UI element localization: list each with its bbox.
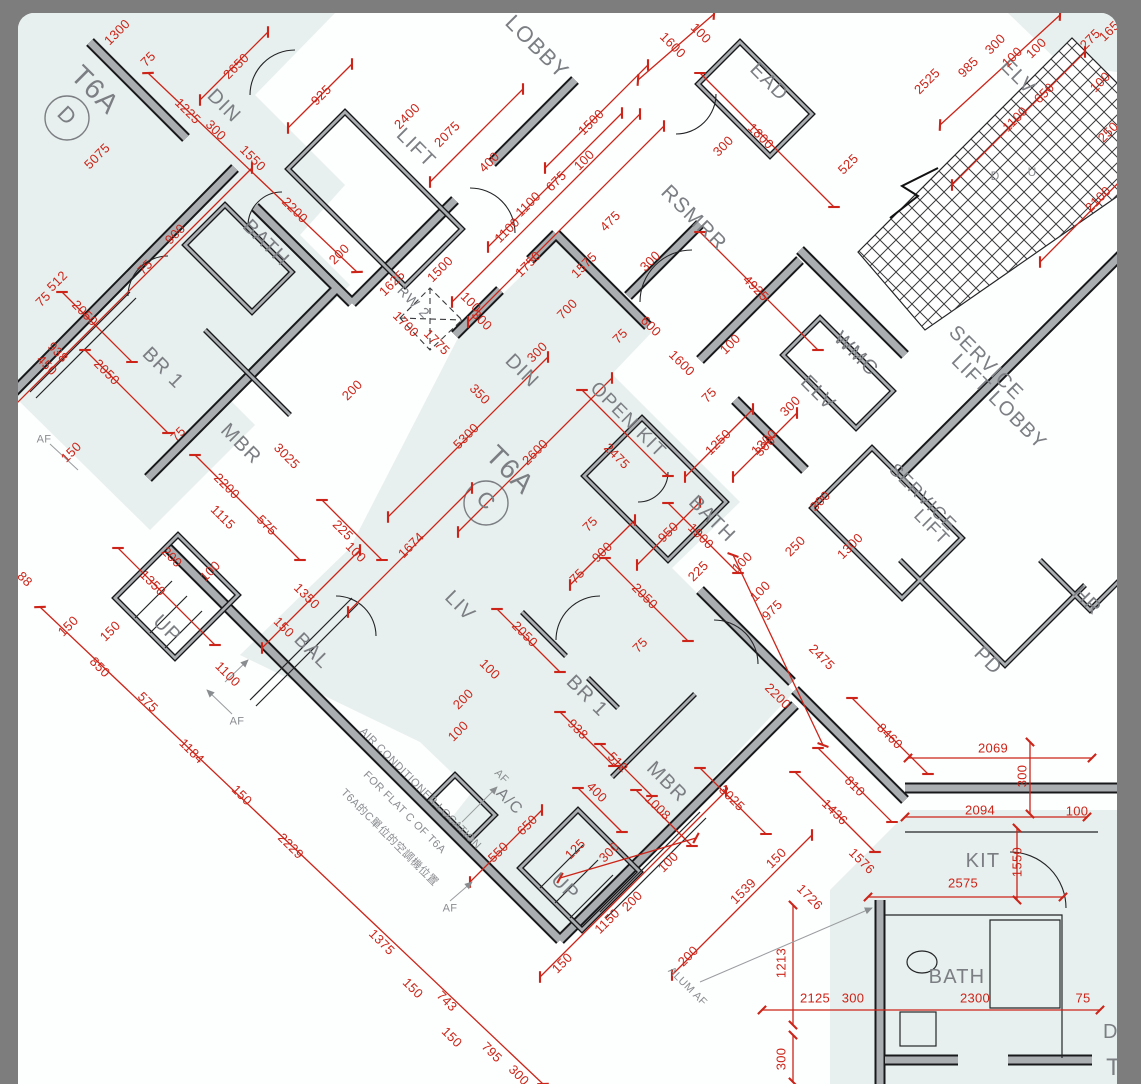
dim-label: 250 <box>1095 119 1117 144</box>
dim-label: 150 <box>97 618 122 643</box>
dim-label: 900 <box>589 539 614 564</box>
dim-label: 75 <box>138 49 158 69</box>
dim-label: 1350 <box>292 581 322 611</box>
dim-label: 675 <box>543 168 568 193</box>
dim-label: 200 <box>619 888 644 913</box>
dim-label: 2050 <box>510 619 540 649</box>
dim-label: 575 <box>135 689 160 714</box>
dim-label: 700 <box>554 296 579 321</box>
room-label: HR <box>1069 583 1105 619</box>
dim-label: 3025 <box>272 441 302 471</box>
room-label: DIN <box>1103 1022 1117 1042</box>
dim-label: 200 <box>675 943 700 968</box>
dim-label: 512 <box>605 749 630 774</box>
dim-label: 100 <box>445 718 470 743</box>
dim-label: 1300 <box>835 531 865 561</box>
dim-label: 512 <box>44 268 69 293</box>
dim-label: 1500 <box>576 107 606 137</box>
dim-label: 650 <box>514 812 539 837</box>
dim-label: 150 <box>400 975 425 1000</box>
room-label: UP <box>547 869 582 904</box>
dim-label: 3025 <box>717 783 747 813</box>
dim-label: 5075 <box>82 141 112 171</box>
dim-label: 1100 <box>213 659 243 689</box>
dim-label: 1184 <box>177 736 207 766</box>
dim-label: 810 <box>842 773 867 798</box>
room-label: A/C <box>493 786 526 819</box>
dim-label: 4925 <box>741 273 771 303</box>
dim-label: 1575 <box>569 250 599 280</box>
dim-label: 75 <box>610 326 630 346</box>
dim-label: 100 <box>729 549 754 574</box>
dim-label: 150 <box>439 1024 464 1049</box>
floor-plan-sheet: T6ADDINBATHBR 1MBRLOBBYLIFTRW 2RSMRREADE… <box>18 13 1117 1084</box>
room-label: C <box>472 487 500 515</box>
dim-label: 150 <box>229 782 254 807</box>
dim-label: 1750 <box>513 249 543 279</box>
dim-label: 2075 <box>432 119 462 149</box>
dim-label: 300 <box>777 393 802 418</box>
dim-label: 225 <box>685 558 710 583</box>
dim-label: 100 <box>747 578 772 603</box>
dim-label: 100 <box>197 558 222 583</box>
dim-label: 200 <box>159 544 184 569</box>
room-label: LIFT <box>393 125 440 172</box>
letter-label: D <box>991 170 1000 182</box>
dim-label: 2200 <box>212 471 242 501</box>
note-label: AF <box>37 435 52 446</box>
dim-label: 1775 <box>422 327 452 357</box>
dim-label: 2050 <box>630 581 660 611</box>
dim-label: 1375 <box>367 927 397 957</box>
dim-label: 2600 <box>520 437 550 467</box>
room-label: BR 1 <box>563 672 612 721</box>
dim-label: 1674 <box>396 530 426 560</box>
dim-label: 1600 <box>658 30 688 60</box>
dim-label: 300 <box>1016 765 1029 788</box>
dim-label: 100 <box>717 331 742 356</box>
room-label: BR 1 <box>139 344 188 393</box>
dim-label: 100 <box>1087 69 1112 94</box>
dim-label: 1550 <box>238 143 268 173</box>
dim-label: 850 <box>87 654 112 679</box>
dim-label: 1100 <box>1000 104 1030 134</box>
dim-label: 1100 <box>492 215 522 245</box>
dim-label: 1550 <box>1011 847 1024 877</box>
dim-label: 75 <box>567 566 587 586</box>
dim-label: 150 <box>55 613 80 638</box>
room-label: ELV <box>797 372 839 414</box>
note-label: AF <box>230 717 245 728</box>
dim-label: 150 <box>549 950 574 975</box>
dim-label: 300 <box>807 488 832 513</box>
dim-label: 100 <box>655 849 680 874</box>
dim-label: 300 <box>637 248 662 273</box>
dim-label: 75 <box>580 514 600 534</box>
room-label: LIV <box>441 587 479 625</box>
room-label: D <box>53 102 81 130</box>
dim-label: 985 <box>955 54 980 79</box>
dim-label: 938 <box>565 716 590 741</box>
room-label: EAD <box>746 59 792 105</box>
dim-label: 1150 <box>592 906 622 936</box>
dim-label: 2069 <box>978 742 1008 755</box>
dim-label: 75 <box>699 385 719 405</box>
dim-label: 2525 <box>912 66 942 96</box>
dim-label: 300 <box>775 1048 788 1071</box>
dim-label: 75 <box>630 635 650 655</box>
dim-label: 2200 <box>763 681 793 711</box>
dim-label: 475 <box>597 208 622 233</box>
dim-label: 975 <box>759 597 784 622</box>
dim-label: 925 <box>308 82 333 107</box>
dim-label: 200 <box>339 377 364 402</box>
dim-label: 350 <box>467 381 492 406</box>
dim-label: 1350 <box>138 568 168 598</box>
room-label: RSMRR <box>657 181 731 255</box>
dim-label: 100 <box>1066 805 1089 818</box>
note-label: ALUM AF <box>665 965 708 1008</box>
dim-label: 75 <box>1075 992 1090 1005</box>
dim-label: 150 <box>58 439 83 464</box>
room-label: PD <box>970 643 1005 678</box>
dim-label: 75 <box>135 257 155 277</box>
room-label: UP <box>149 611 184 646</box>
dim-label: 1115 <box>208 502 237 531</box>
dim-label: 5300 <box>451 421 481 451</box>
dim-label: 2575 <box>948 877 978 890</box>
dim-label: 2050 <box>70 298 100 328</box>
dim-label: 550 <box>485 839 510 864</box>
dim-label: 2050 <box>92 357 122 387</box>
dim-label: 1539 <box>728 876 758 906</box>
dim-label: 300 <box>842 992 865 1005</box>
dim-label: 1436 <box>820 797 850 827</box>
plan-labels: T6ADDINBATHBR 1MBRLOBBYLIFTRW 2RSMRREADE… <box>18 13 1117 1084</box>
room-label: LOBBY <box>501 13 573 83</box>
dim-label: 1600 <box>667 348 697 378</box>
dim-label: 88 <box>18 569 35 589</box>
dim-label: 2475 <box>807 642 837 672</box>
note-label: AF <box>492 768 510 786</box>
dim-label: 100 <box>343 539 368 564</box>
dim-label: 300 <box>506 1062 531 1084</box>
dim-label: 125 <box>562 836 587 861</box>
dim-label: 400 <box>584 779 609 804</box>
room-label: BATH <box>239 216 293 270</box>
dim-label: 2100 <box>1083 184 1113 214</box>
dim-label: 600 <box>638 313 663 338</box>
dim-label: 2094 <box>965 804 995 817</box>
dim-label: 300 <box>469 307 494 332</box>
dim-label: 1225 <box>173 96 203 126</box>
dim-label: 1250 <box>703 427 733 457</box>
dim-label: 100 <box>571 147 596 172</box>
note-label: AF <box>443 904 458 915</box>
dim-label: 2475 <box>602 441 632 471</box>
dim-label: 795 <box>479 1039 504 1064</box>
room-label: BAL <box>290 629 333 672</box>
dim-label: 1726 <box>795 882 825 912</box>
letter-label: U <box>1028 166 1037 178</box>
dim-label: 75 <box>168 424 188 444</box>
dim-label: 575 <box>254 512 279 537</box>
dim-label: 150 <box>271 614 296 639</box>
dim-label: 1800 <box>746 121 776 151</box>
dim-label: 2229 <box>276 831 306 861</box>
room-label: WMC <box>830 328 882 380</box>
dim-label: 200 <box>450 686 475 711</box>
room-label: T <box>1106 1056 1117 1080</box>
room-label: OPEN KIT <box>587 379 670 462</box>
dim-label: 250 <box>782 533 807 558</box>
dim-label: 200 <box>326 241 351 266</box>
dim-label: 1500 <box>425 254 455 284</box>
dim-label: 300 <box>710 133 735 158</box>
dim-label: 900 <box>162 221 187 246</box>
dim-label: 400 <box>476 149 501 174</box>
dim-label: 743 <box>434 988 459 1013</box>
dim-label: 150 <box>763 845 788 870</box>
dim-label: 2125 <box>800 992 830 1005</box>
dim-label: 1213 <box>775 948 788 978</box>
dim-label: 2200 <box>280 195 310 225</box>
room-label: KIT <box>966 851 1001 871</box>
dim-label: 1300 <box>102 17 132 47</box>
dim-label: 300 <box>596 839 621 864</box>
dim-label: 100 <box>1023 35 1048 60</box>
dim-label: 8460 <box>875 721 905 751</box>
dim-label: 100 <box>688 20 713 45</box>
dim-label: 75 <box>33 289 53 309</box>
dim-label: 950 <box>655 519 680 544</box>
room-label: BATH <box>929 967 986 987</box>
dim-label: 1100 <box>513 189 543 219</box>
dim-label: 2300 <box>960 992 990 1005</box>
dim-label: 100 <box>477 656 502 681</box>
room-label: MBR <box>217 420 265 468</box>
dim-label: 1576 <box>847 846 877 876</box>
dim-label: 2650 <box>221 51 251 81</box>
dim-label: 525 <box>835 151 860 176</box>
